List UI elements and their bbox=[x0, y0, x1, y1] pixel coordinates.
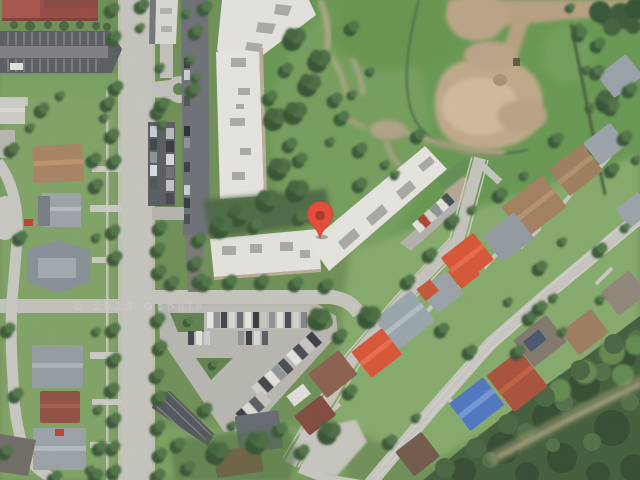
svg-text:© 2023 Google: © 2023 Google bbox=[74, 301, 207, 313]
